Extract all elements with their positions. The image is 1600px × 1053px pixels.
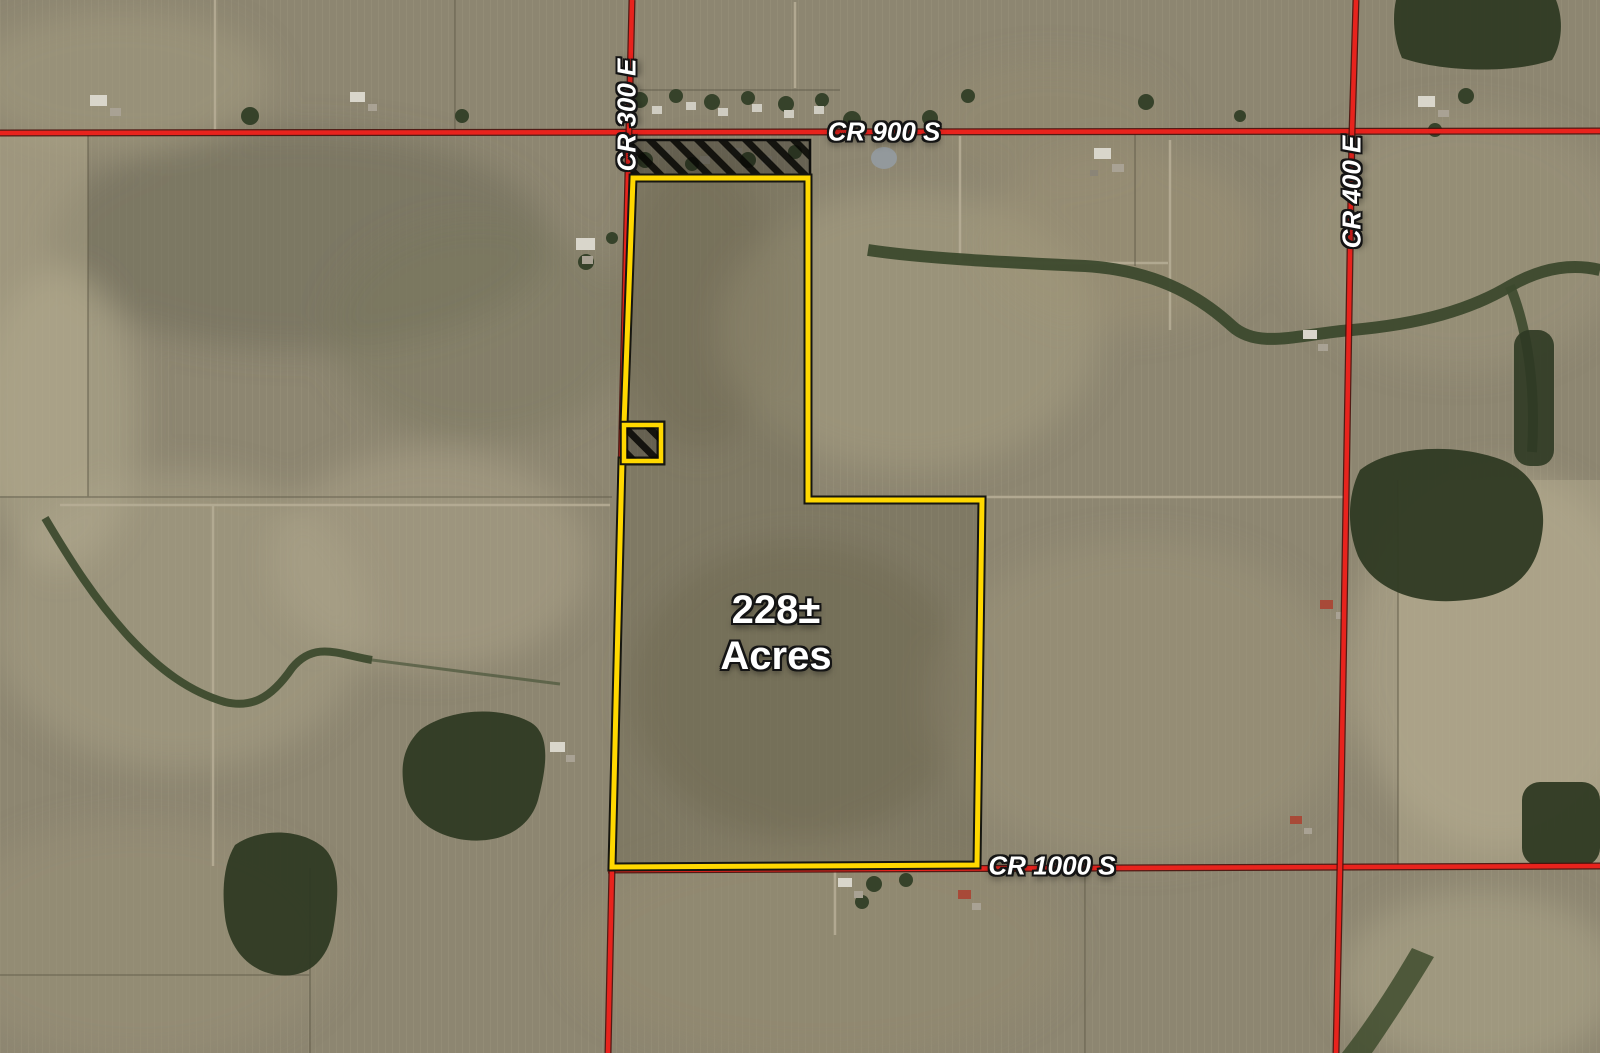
aerial-parcel-map: CR 300 E CR 900 S CR 400 E CR 1000 S 228… — [0, 0, 1600, 1053]
road-label-cr-1000-s: CR 1000 S — [988, 851, 1115, 882]
road-label-cr-900-s: CR 900 S — [828, 117, 941, 148]
acreage-unit: Acres — [720, 633, 831, 679]
road-label-cr-400-e: CR 400 E — [1337, 136, 1368, 249]
road-label-cr-300-e: CR 300 E — [612, 59, 643, 172]
pale-field — [0, 134, 88, 496]
parcel-acreage-label: 228± Acres — [720, 587, 831, 679]
exclusion-square-hatch — [624, 425, 661, 461]
acreage-value: 228± — [720, 587, 831, 633]
pond — [871, 147, 897, 169]
road-cr900s — [0, 131, 1600, 133]
exclusion-square — [624, 425, 661, 461]
exclusion-hatch-north — [632, 140, 810, 177]
